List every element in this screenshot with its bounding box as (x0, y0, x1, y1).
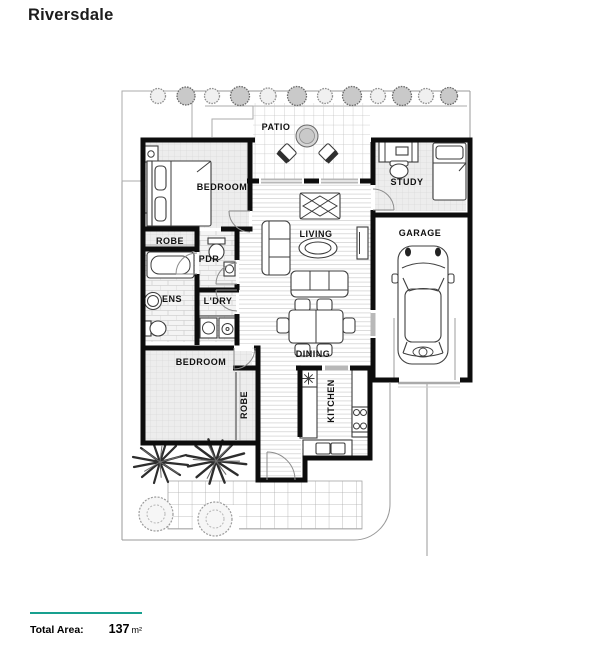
garden-shrub-row (151, 87, 458, 106)
total-area-label: Total Area: (30, 624, 84, 636)
armchair (262, 221, 290, 275)
bedside-table (144, 146, 158, 162)
sink (316, 443, 330, 454)
room-label-garage: GARAGE (399, 228, 442, 238)
total-area-value: 137m² (109, 620, 142, 638)
round-shrub-2 (198, 502, 232, 536)
room-label-robe2: ROBE (239, 391, 249, 419)
dining-chair (277, 318, 289, 333)
dining-chair (295, 299, 310, 311)
room-label-bedroom1: BEDROOM (197, 182, 248, 192)
hall-floor (239, 231, 252, 344)
floorplan-page: Riversdale (0, 0, 608, 650)
room-label-ens: ENS (162, 294, 182, 304)
room-label-ldry: L'DRY (204, 296, 233, 306)
dining-chair (343, 318, 355, 333)
laptop (396, 147, 408, 155)
dining-chair (317, 299, 332, 311)
car-mirror (448, 274, 454, 283)
room-label-study: STUDY (390, 177, 423, 187)
round-shrub-1 (139, 497, 173, 531)
room-label-patio: PATIO (262, 122, 291, 132)
floor-plan-drawing: PATIO BEDROOM STUDY LIVING GARAGE ROBE P… (0, 0, 608, 650)
car-mirror (392, 274, 398, 283)
pillow (155, 166, 166, 190)
room-label-dining: DINING (296, 349, 331, 359)
laundry-fixtures (199, 316, 236, 338)
room-label-bedroom2: BEDROOM (176, 357, 227, 367)
palm-tree-1 (133, 442, 188, 483)
room-label-kitchen: KITCHEN (326, 379, 336, 423)
sofa (291, 271, 348, 297)
entry-hall-floor (260, 350, 301, 481)
sink (331, 443, 345, 454)
toilet (208, 238, 225, 244)
pillow (155, 197, 166, 221)
pillow (436, 146, 463, 159)
total-area-footer: Total Area: 137m² (30, 612, 142, 638)
tv-unit (357, 227, 368, 259)
room-label-robe1: ROBE (156, 236, 184, 246)
garage-car (392, 246, 455, 380)
room-label-pdr: PDR (199, 254, 220, 264)
paved-path (168, 481, 362, 531)
plan-title: Riversdale (28, 6, 113, 25)
room-label-living: LIVING (299, 229, 332, 239)
